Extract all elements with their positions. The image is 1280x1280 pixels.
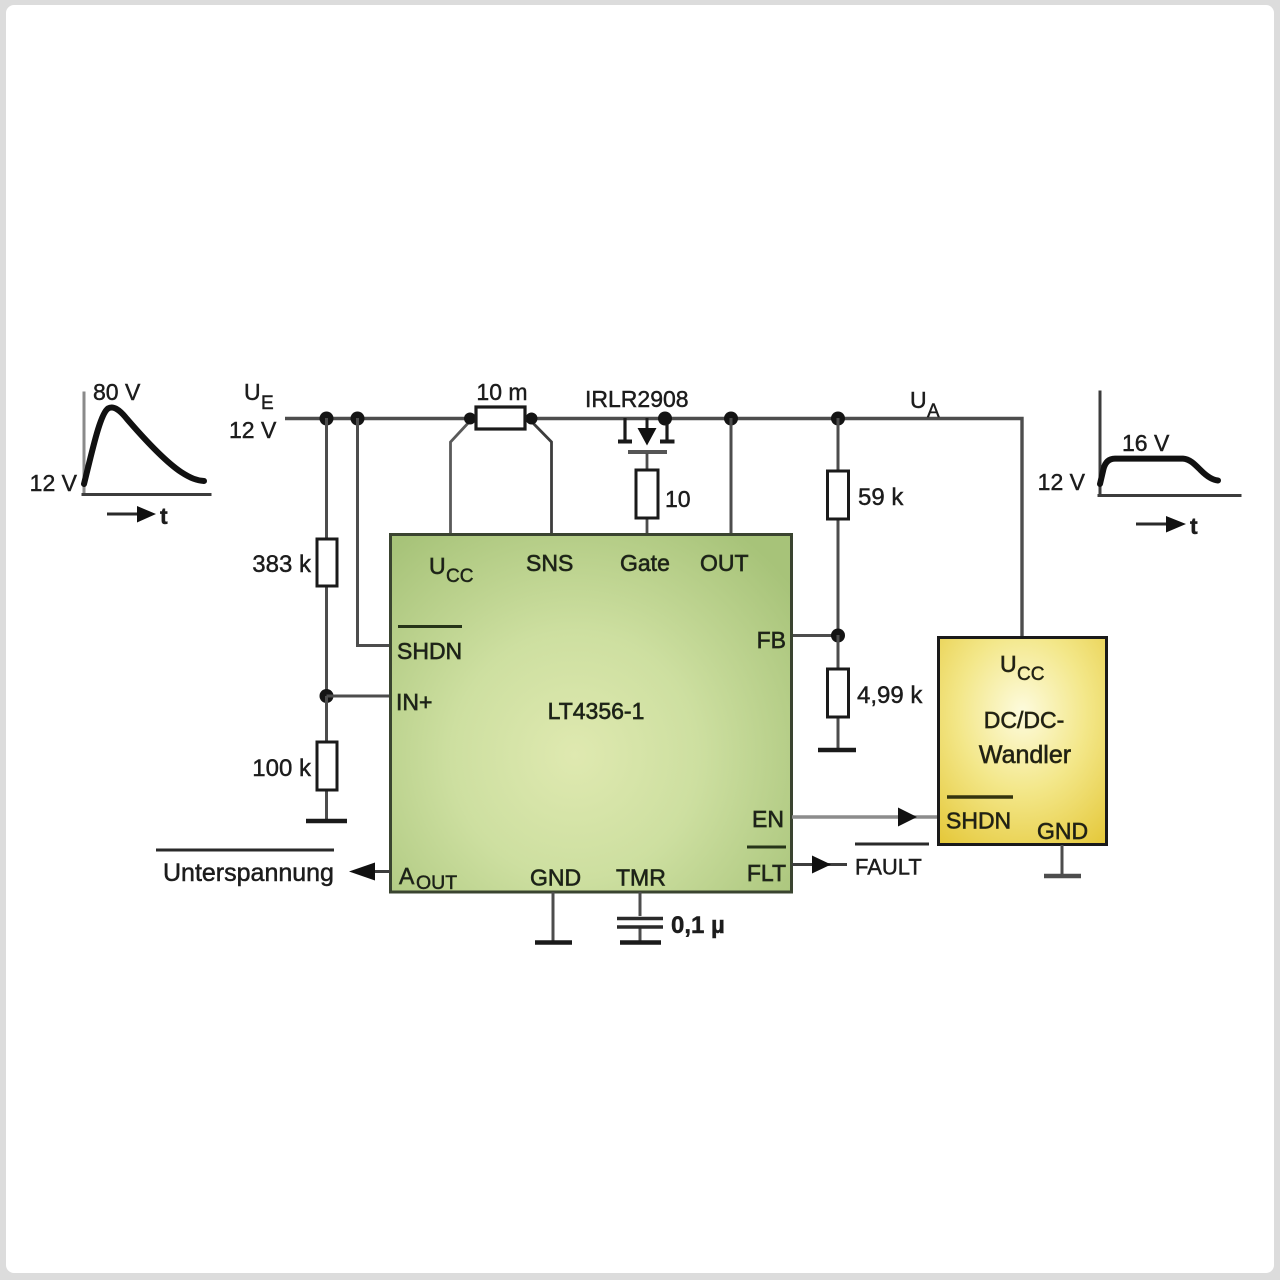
svg-text:SHDN: SHDN (397, 638, 462, 664)
svg-text:t: t (1190, 513, 1198, 539)
svg-text:4,99 k: 4,99 k (857, 682, 923, 709)
svg-text:Wandler: Wandler (979, 741, 1071, 769)
svg-text:FAULT: FAULT (855, 855, 922, 880)
svg-text:TMR: TMR (616, 865, 666, 891)
svg-text:12 V: 12 V (229, 417, 277, 443)
svg-text:SNS: SNS (526, 550, 573, 576)
svg-text:SHDN: SHDN (946, 808, 1011, 834)
svg-text:GND: GND (1037, 818, 1088, 844)
svg-text:OUT: OUT (416, 872, 457, 894)
svg-text:U: U (244, 379, 261, 405)
svg-text:U: U (910, 387, 927, 413)
svg-text:GND: GND (530, 865, 581, 891)
svg-text:LT4356-1: LT4356-1 (548, 698, 645, 724)
svg-text:DC/DC-: DC/DC- (984, 707, 1065, 733)
svg-text:59 k: 59 k (858, 484, 904, 511)
svg-text:t: t (160, 503, 168, 529)
svg-text:E: E (261, 393, 274, 414)
svg-text:IN+: IN+ (396, 689, 432, 715)
svg-text:A: A (927, 401, 940, 422)
svg-text:FB: FB (757, 627, 786, 653)
svg-text:16 V: 16 V (1122, 430, 1170, 456)
svg-text:383 k: 383 k (252, 551, 312, 578)
svg-text:U: U (429, 553, 446, 579)
svg-text:U: U (1000, 651, 1017, 677)
svg-text:CC: CC (1017, 664, 1044, 685)
svg-text:IRLR2908: IRLR2908 (585, 386, 689, 412)
svg-text:10 m: 10 m (476, 379, 527, 405)
svg-text:0,1 µ: 0,1 µ (671, 912, 725, 939)
svg-text:Unterspannung: Unterspannung (163, 859, 334, 887)
svg-text:EN: EN (752, 806, 784, 832)
svg-text:80 V: 80 V (93, 379, 141, 405)
svg-text:OUT: OUT (700, 550, 749, 576)
svg-text:10: 10 (665, 486, 691, 512)
svg-text:100 k: 100 k (252, 755, 312, 782)
svg-text:CC: CC (446, 566, 473, 587)
svg-text:12 V: 12 V (1038, 469, 1086, 495)
svg-text:Gate: Gate (620, 550, 670, 576)
svg-text:12 V: 12 V (30, 470, 78, 496)
svg-text:FLT: FLT (747, 860, 786, 886)
svg-text:A: A (399, 863, 415, 889)
